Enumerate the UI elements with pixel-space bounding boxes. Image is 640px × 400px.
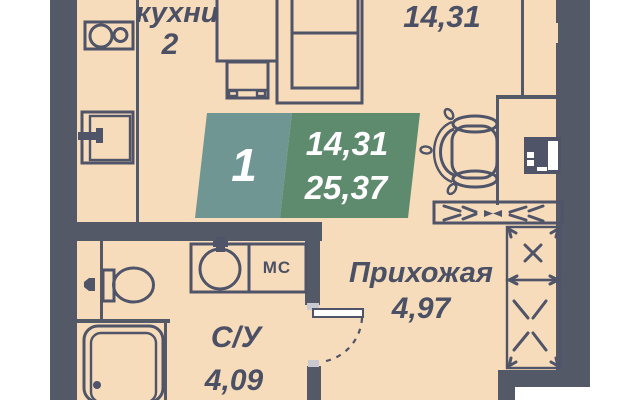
kitchen-number: 2 (161, 28, 179, 61)
tv-unit-icon (524, 137, 561, 174)
wall-bath-divider (50, 222, 322, 241)
right-margin (590, 0, 640, 400)
wall-notch (553, 23, 558, 43)
bathroom-area: 4,09 (204, 364, 264, 397)
bottom-right-margin (515, 387, 640, 400)
shower-top-line (77, 319, 170, 323)
washing-machine-label: МС (263, 258, 291, 277)
wall-left (50, 0, 77, 400)
partition-alcove-top (496, 95, 558, 99)
area-badge: 1 14,31 25,37 (195, 113, 420, 218)
hallway-area: 4,97 (391, 292, 452, 325)
kitchen-counter-line (136, 0, 139, 222)
living-room-area: 14,31 (403, 0, 481, 34)
floor-plan-svg: МС 1 14,31 25,37 кухни 2 14,31 Прихожая … (0, 0, 640, 400)
hallway-label: Прихожая (349, 257, 493, 289)
badge-living-area: 14,31 (306, 125, 389, 162)
partition-top-right (521, 0, 524, 98)
bathroom-label: С/У (211, 321, 264, 354)
door-jamb-cap-bottom (308, 360, 319, 367)
floor-plan: МС 1 14,31 25,37 кухни 2 14,31 Прихожая … (0, 0, 640, 400)
door-leaf (313, 309, 363, 317)
badge-unit-number: 1 (231, 139, 257, 191)
badge-total-area: 25,37 (304, 169, 389, 206)
wall-door-jamb (307, 366, 321, 400)
kitchen-label: кухни (136, 0, 219, 29)
wall-bottom-stub (498, 370, 515, 400)
